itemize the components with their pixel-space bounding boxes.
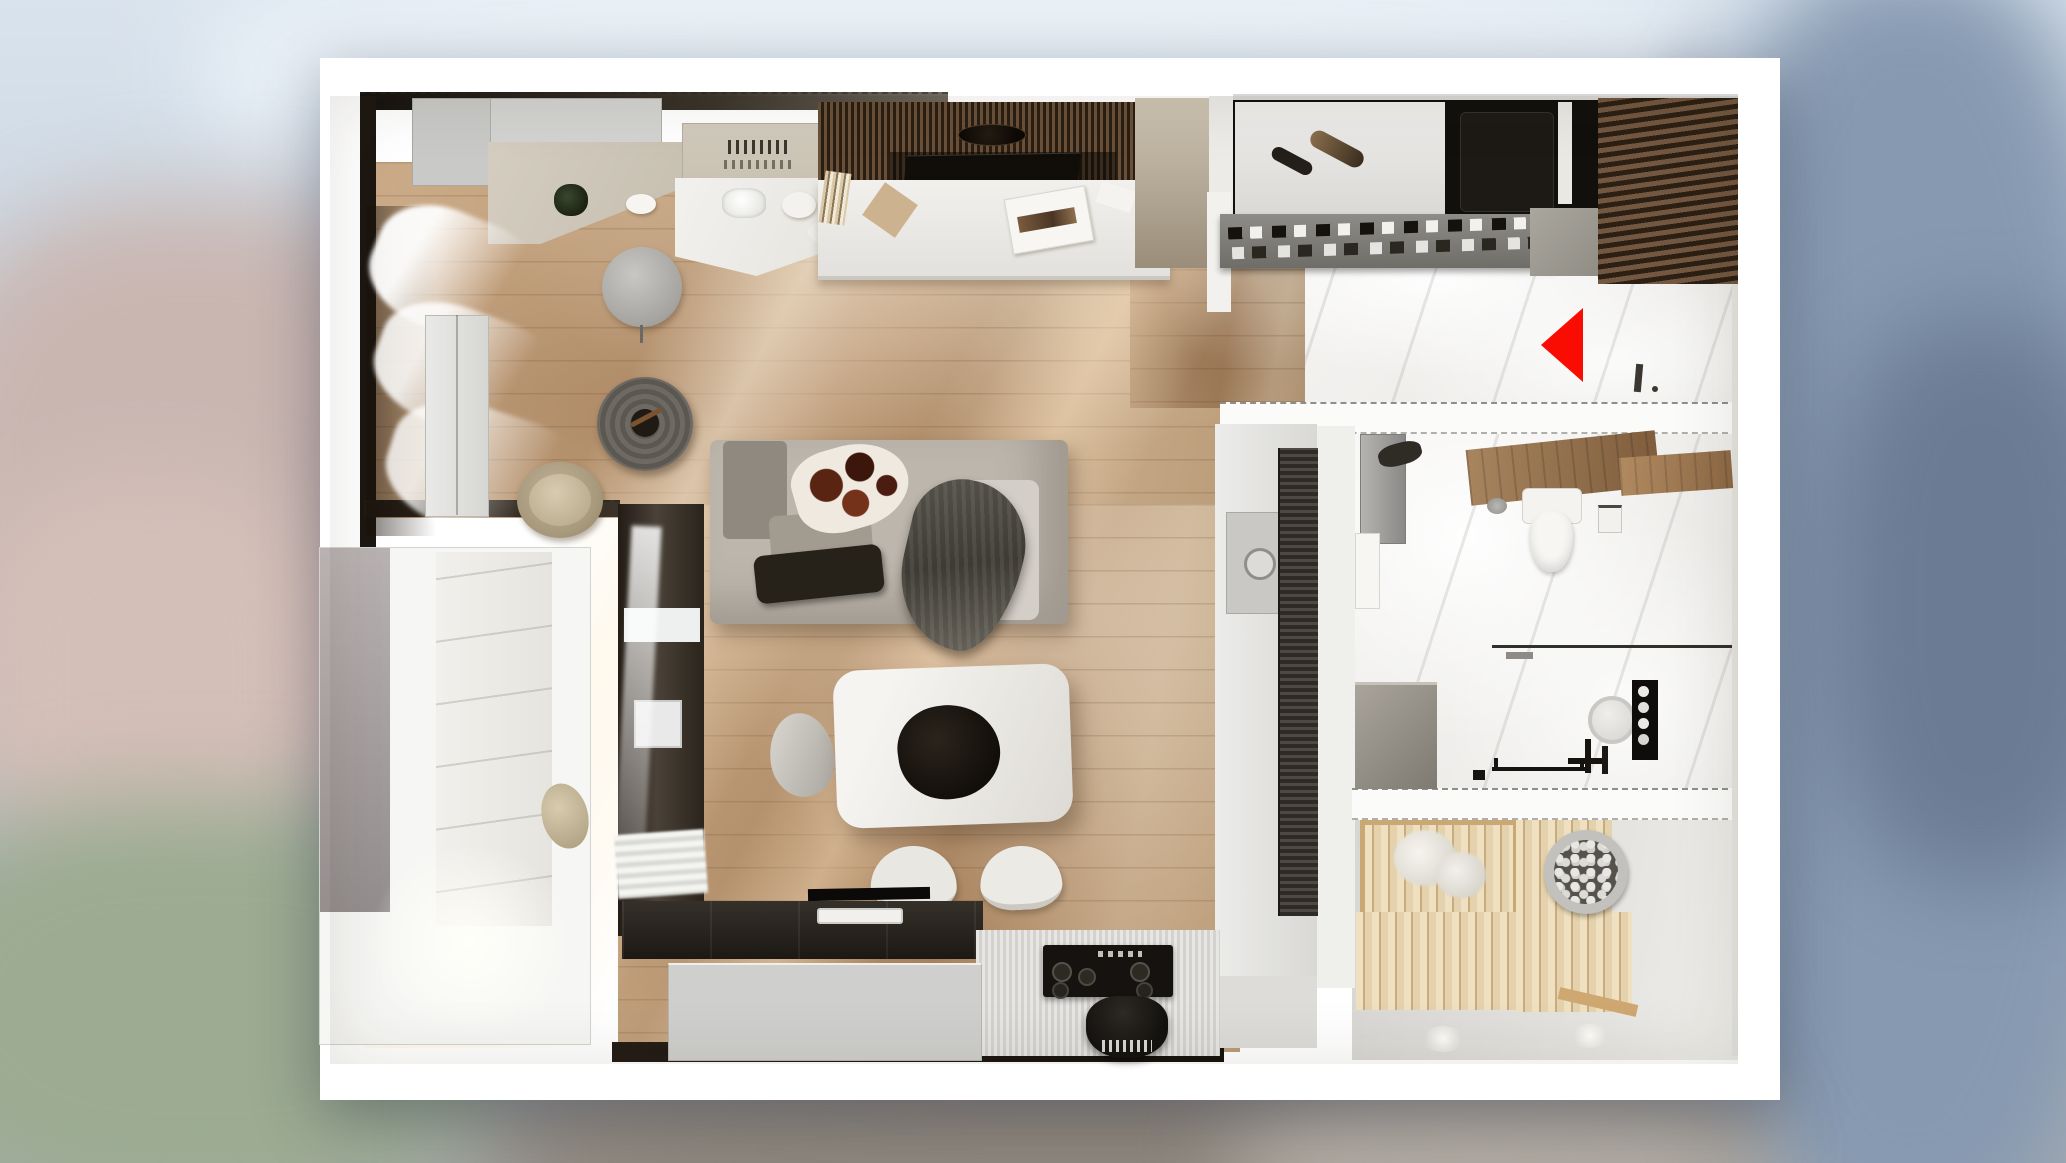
tp-holder — [1598, 505, 1622, 533]
stone-bucket — [1544, 830, 1628, 914]
tv-bench — [622, 901, 983, 959]
bath-wood-counter-ext — [1619, 450, 1733, 496]
rack-bottle-4 — [1638, 734, 1649, 745]
shower-glass-handle — [1506, 652, 1533, 659]
stove-knob-2 — [1078, 968, 1096, 986]
stove-knob-3 — [1130, 962, 1150, 982]
towel-bar-foot-2 — [1580, 758, 1584, 770]
kitchen-plant — [554, 184, 588, 216]
floor-drain — [1487, 498, 1507, 514]
ribbed-strip — [1278, 448, 1318, 916]
towel-bar — [1492, 767, 1587, 771]
towel-bar-foot-1 — [1494, 758, 1498, 770]
background-building-right-dark — [1830, 320, 2066, 880]
tub-small-tap — [1473, 770, 1485, 780]
side-table-leg — [640, 325, 643, 343]
wardrobe-divider — [1558, 102, 1572, 204]
hood-vent-slots-2 — [724, 160, 794, 169]
bath-lower-cabinet — [1355, 682, 1437, 789]
entry-door-dot — [1652, 386, 1658, 392]
kitchen-cabinet-wide — [490, 98, 662, 146]
floor-pouf — [517, 462, 603, 538]
hall-gray-block — [1530, 208, 1608, 276]
wall-bath-sauna-divider — [1352, 788, 1738, 820]
shower-glass-line — [1492, 645, 1732, 648]
kitchen-cabinet-tall — [412, 98, 492, 186]
hood-vent-slots — [728, 140, 788, 154]
wall-right-edge — [1732, 206, 1738, 1056]
ceiling-speaker — [958, 124, 1026, 146]
window-curtain-fold — [614, 829, 708, 899]
tub-faucet-v2 — [1602, 746, 1608, 774]
round-mirror — [1588, 696, 1636, 744]
desk-side-wall — [1135, 98, 1209, 268]
tv-thin — [808, 887, 930, 901]
floor-plan-card — [320, 58, 1780, 1100]
side-table — [602, 247, 682, 327]
entry-arrow — [1541, 308, 1583, 382]
balcony-wall-left — [320, 548, 390, 912]
stove-cylinder-grill — [1102, 1040, 1152, 1052]
wardrobe-suitcase — [1460, 112, 1554, 212]
bath-wall-panel — [1355, 533, 1380, 609]
sauna-towels-2 — [1436, 852, 1486, 898]
sauna-floor-light-2 — [1570, 1024, 1610, 1048]
column-bottom-block — [1215, 976, 1317, 1048]
rack-bottle-3 — [1638, 718, 1649, 729]
media-remote — [817, 908, 903, 924]
balcony-floor-glow — [360, 848, 580, 1038]
stove-knob-1 — [1052, 962, 1072, 982]
floor-plan — [330, 96, 1738, 1064]
wall-bath-left — [1315, 426, 1355, 988]
balcony — [320, 548, 590, 1044]
tub-faucet-h — [1568, 758, 1606, 764]
sofa — [710, 440, 1070, 650]
kitchen-plate — [782, 192, 816, 218]
scene — [0, 0, 2066, 1163]
hall-slat-wall — [1598, 98, 1738, 284]
sauna-floor-light-1 — [1420, 1026, 1466, 1052]
kitchen-sink — [722, 188, 766, 218]
kitchen-bowl — [626, 194, 656, 214]
rack-bottle-2 — [1638, 702, 1649, 713]
intercom-circle — [1244, 548, 1276, 580]
stove-display — [1098, 951, 1142, 957]
stove-knob-4 — [1052, 982, 1069, 999]
left-wall-cabinet-seam — [456, 315, 458, 515]
rack-bottle-1 — [1638, 686, 1649, 697]
gray-mat — [668, 963, 982, 1061]
